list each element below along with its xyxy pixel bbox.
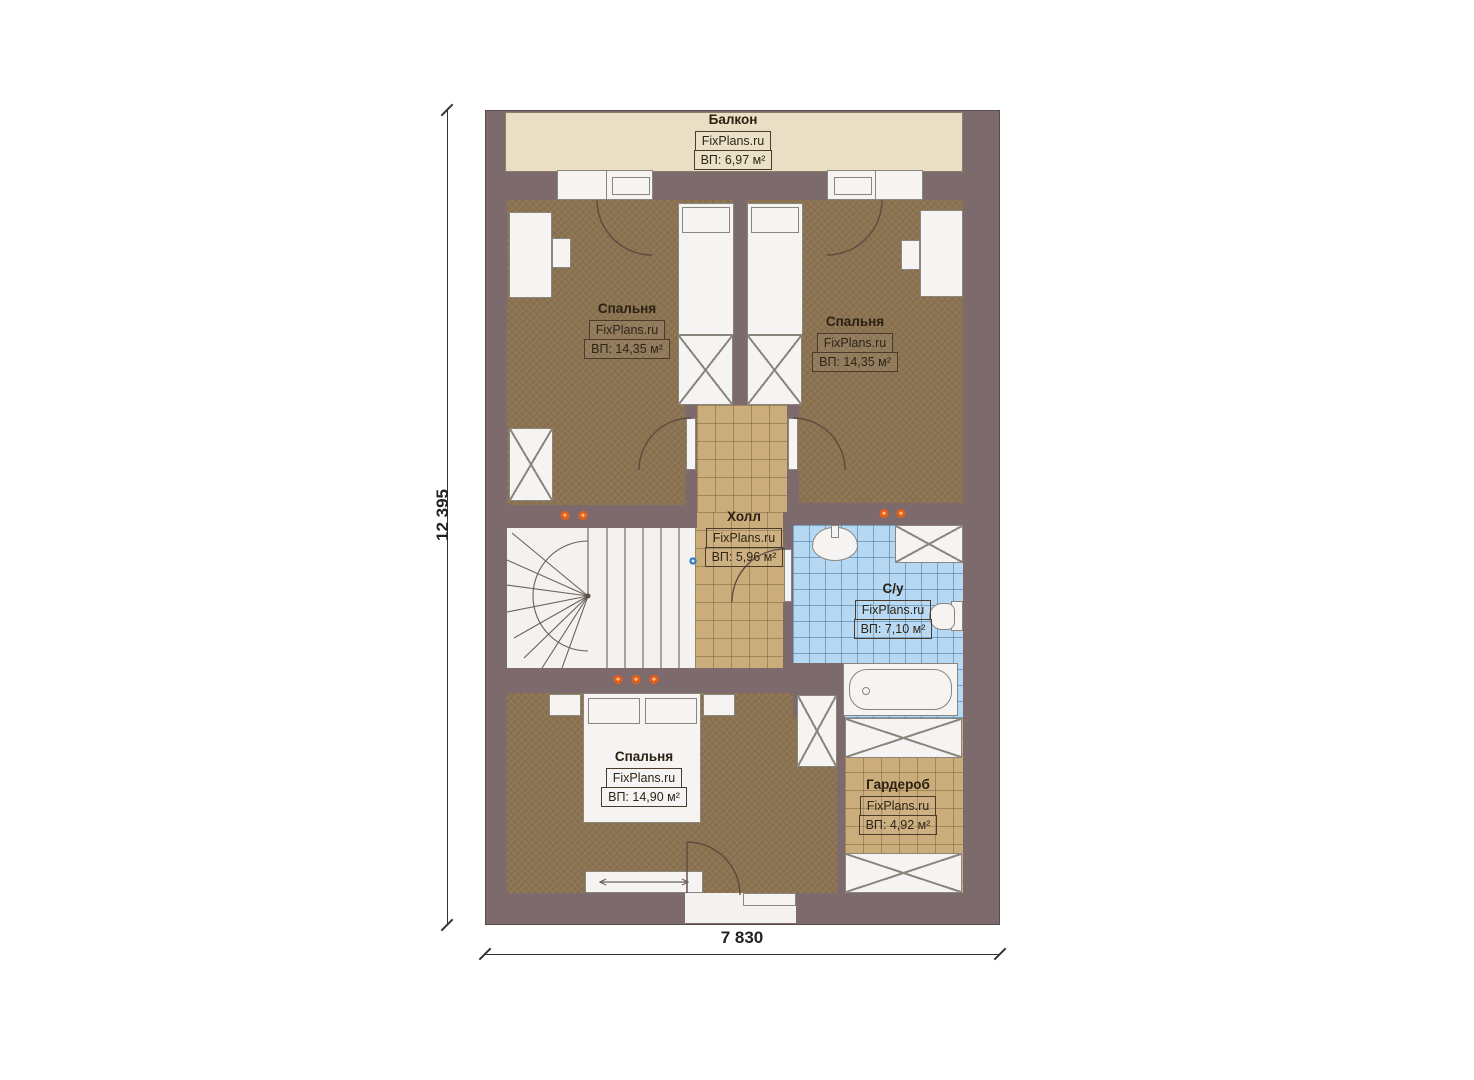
heat-dot xyxy=(560,511,570,521)
wall-corridor-left xyxy=(685,405,697,418)
room-name: Спальня xyxy=(826,315,884,330)
room-area: ВП: 14,35 м² xyxy=(584,339,670,359)
brand-watermark: FixPlans.ru xyxy=(855,600,932,620)
desk-bedroom-top-right xyxy=(920,210,963,297)
brand-watermark: FixPlans.ru xyxy=(706,528,783,548)
room-area: ВП: 6,97 м² xyxy=(694,150,773,170)
room-area: ВП: 14,35 м² xyxy=(812,352,898,372)
heat-dot xyxy=(631,675,641,685)
label-bedroom-top-right: Спальня FixPlans.ru ВП: 14,35 м² xyxy=(755,315,955,372)
nightstand-right xyxy=(703,694,735,716)
door-leaf-entry xyxy=(743,893,796,906)
heat-dot xyxy=(896,509,906,519)
nightstand-left xyxy=(549,694,581,716)
label-balcony: Балкон FixPlans.ru ВП: 6,97 м² xyxy=(633,113,833,170)
floor-plan-page: 12 395 7 830 xyxy=(0,0,1474,1080)
heat-dot xyxy=(613,675,623,685)
room-area: ВП: 7,10 м² xyxy=(854,619,933,639)
label-bedroom-bottom: Спальня FixPlans.ru ВП: 14,90 м² xyxy=(544,750,744,807)
dimension-label-horizontal: 7 830 xyxy=(692,928,792,948)
brand-watermark: FixPlans.ru xyxy=(589,320,666,340)
room-name: Холл xyxy=(727,510,761,525)
closet-bedroom-bottom xyxy=(797,695,837,767)
washing-machine xyxy=(895,525,963,563)
heat-dot xyxy=(879,509,889,519)
label-bathroom: С/у FixPlans.ru ВП: 7,10 м² xyxy=(793,582,993,639)
room-name: Гардероб xyxy=(866,778,930,793)
heat-dot xyxy=(578,511,588,521)
chair-bedroom-top-right xyxy=(901,240,920,270)
label-hall: Холл FixPlans.ru ВП: 5,96 м² xyxy=(644,510,844,567)
desk-bedroom-top-left xyxy=(509,212,552,298)
dresser-bedroom-bottom xyxy=(585,871,703,893)
room-area: ВП: 14,90 м² xyxy=(601,787,687,807)
room-name: С/у xyxy=(882,582,903,597)
wall-corridor-left xyxy=(685,470,697,512)
room-name: Спальня xyxy=(615,750,673,765)
label-wardrobe: Гардероб FixPlans.ru ВП: 4,92 м² xyxy=(798,778,998,835)
brand-watermark: FixPlans.ru xyxy=(606,768,683,788)
door-leaf-bedroom-right xyxy=(788,418,798,470)
door-leaf-bedroom-left xyxy=(686,418,696,470)
hall-corridor xyxy=(697,405,787,512)
label-bedroom-top-left: Спальня FixPlans.ru ВП: 14,35 м² xyxy=(527,302,727,359)
bathtub-drain xyxy=(862,687,870,695)
dimension-line-horizontal xyxy=(485,954,1000,955)
chair-bedroom-top-left xyxy=(552,238,571,268)
wardrobe-storage-bottom xyxy=(845,853,962,893)
bathtub xyxy=(843,663,958,716)
brand-watermark: FixPlans.ru xyxy=(695,131,772,151)
room-area: ВП: 4,92 м² xyxy=(859,815,938,835)
dimension-label-vertical: 12 395 xyxy=(433,470,453,560)
room-area: ВП: 5,96 м² xyxy=(705,547,784,567)
wall-corridor-right xyxy=(787,405,799,418)
room-name: Балкон xyxy=(709,113,758,128)
room-name: Спальня xyxy=(598,302,656,317)
wall-corridor-right xyxy=(787,470,799,512)
balcony-door-left xyxy=(557,170,653,200)
heat-dot xyxy=(649,675,659,685)
brand-watermark: FixPlans.ru xyxy=(860,796,937,816)
wardrobe-storage-top xyxy=(845,718,962,758)
closet-bedroom-top-left xyxy=(509,428,553,501)
balcony-door-right xyxy=(827,170,923,200)
wall-center-bedrooms xyxy=(733,172,747,405)
brand-watermark: FixPlans.ru xyxy=(817,333,894,353)
